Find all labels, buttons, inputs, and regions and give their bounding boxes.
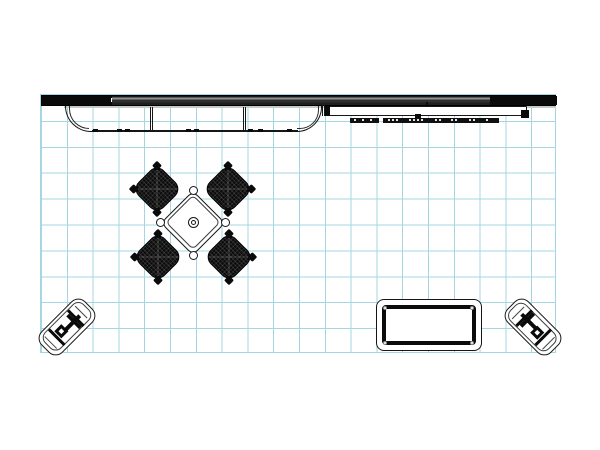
lightbox-left-cap: [325, 106, 330, 116]
literature-mark: [451, 119, 453, 121]
wall-joint-notch: [111, 98, 113, 103]
literature-mark: [362, 119, 364, 121]
table-corner-circle: [189, 251, 198, 260]
literature-mark: [413, 119, 415, 121]
case-bolt: [470, 341, 474, 345]
literature-mark: [455, 119, 457, 121]
counter-foot: [194, 129, 199, 132]
literature-mark: [388, 119, 390, 121]
lightbox-shelf: [327, 106, 527, 116]
literature-mark: [473, 119, 475, 121]
wall-right-black-segment: [490, 96, 557, 105]
literature-mark: [435, 119, 437, 121]
wall-gray-segment: [112, 96, 490, 105]
literature-mark: [439, 119, 441, 121]
wall-shelf-tick: [426, 102, 427, 107]
counter-divider: [150, 107, 153, 131]
counter-foot: [125, 129, 130, 132]
counter-foot: [117, 129, 122, 132]
lightbox-right-bracket: [521, 110, 529, 118]
literature-mark: [392, 119, 394, 121]
literature-strip: [383, 118, 499, 123]
display-case-table: [376, 299, 482, 351]
literature-mark: [354, 119, 356, 121]
wall-left-black-segment: [42, 96, 112, 105]
back-wall-truss: [41, 95, 556, 106]
literature-mark: [486, 119, 488, 121]
counter-foot: [186, 129, 191, 132]
case-bolt: [383, 341, 387, 345]
literature-mark: [469, 119, 471, 121]
counter-foot: [248, 129, 253, 132]
table-corner-circle: [156, 218, 165, 227]
literature-mark: [370, 119, 372, 121]
table-corner-circle: [189, 186, 198, 195]
literature-mark: [409, 119, 411, 121]
literature-mark: [396, 119, 398, 121]
literature-mark: [421, 119, 423, 121]
counter-foot: [258, 129, 263, 132]
table-center-hub-inner: [191, 220, 196, 225]
counter-divider: [243, 107, 246, 131]
counter-foot: [93, 129, 98, 132]
counter-foot: [287, 129, 292, 132]
literature-mark: [417, 119, 419, 121]
literature-strip: [350, 118, 379, 123]
display-case-frame: [382, 305, 476, 345]
booth-floorplan-canvas: [0, 0, 600, 450]
table-corner-circle: [221, 218, 230, 227]
